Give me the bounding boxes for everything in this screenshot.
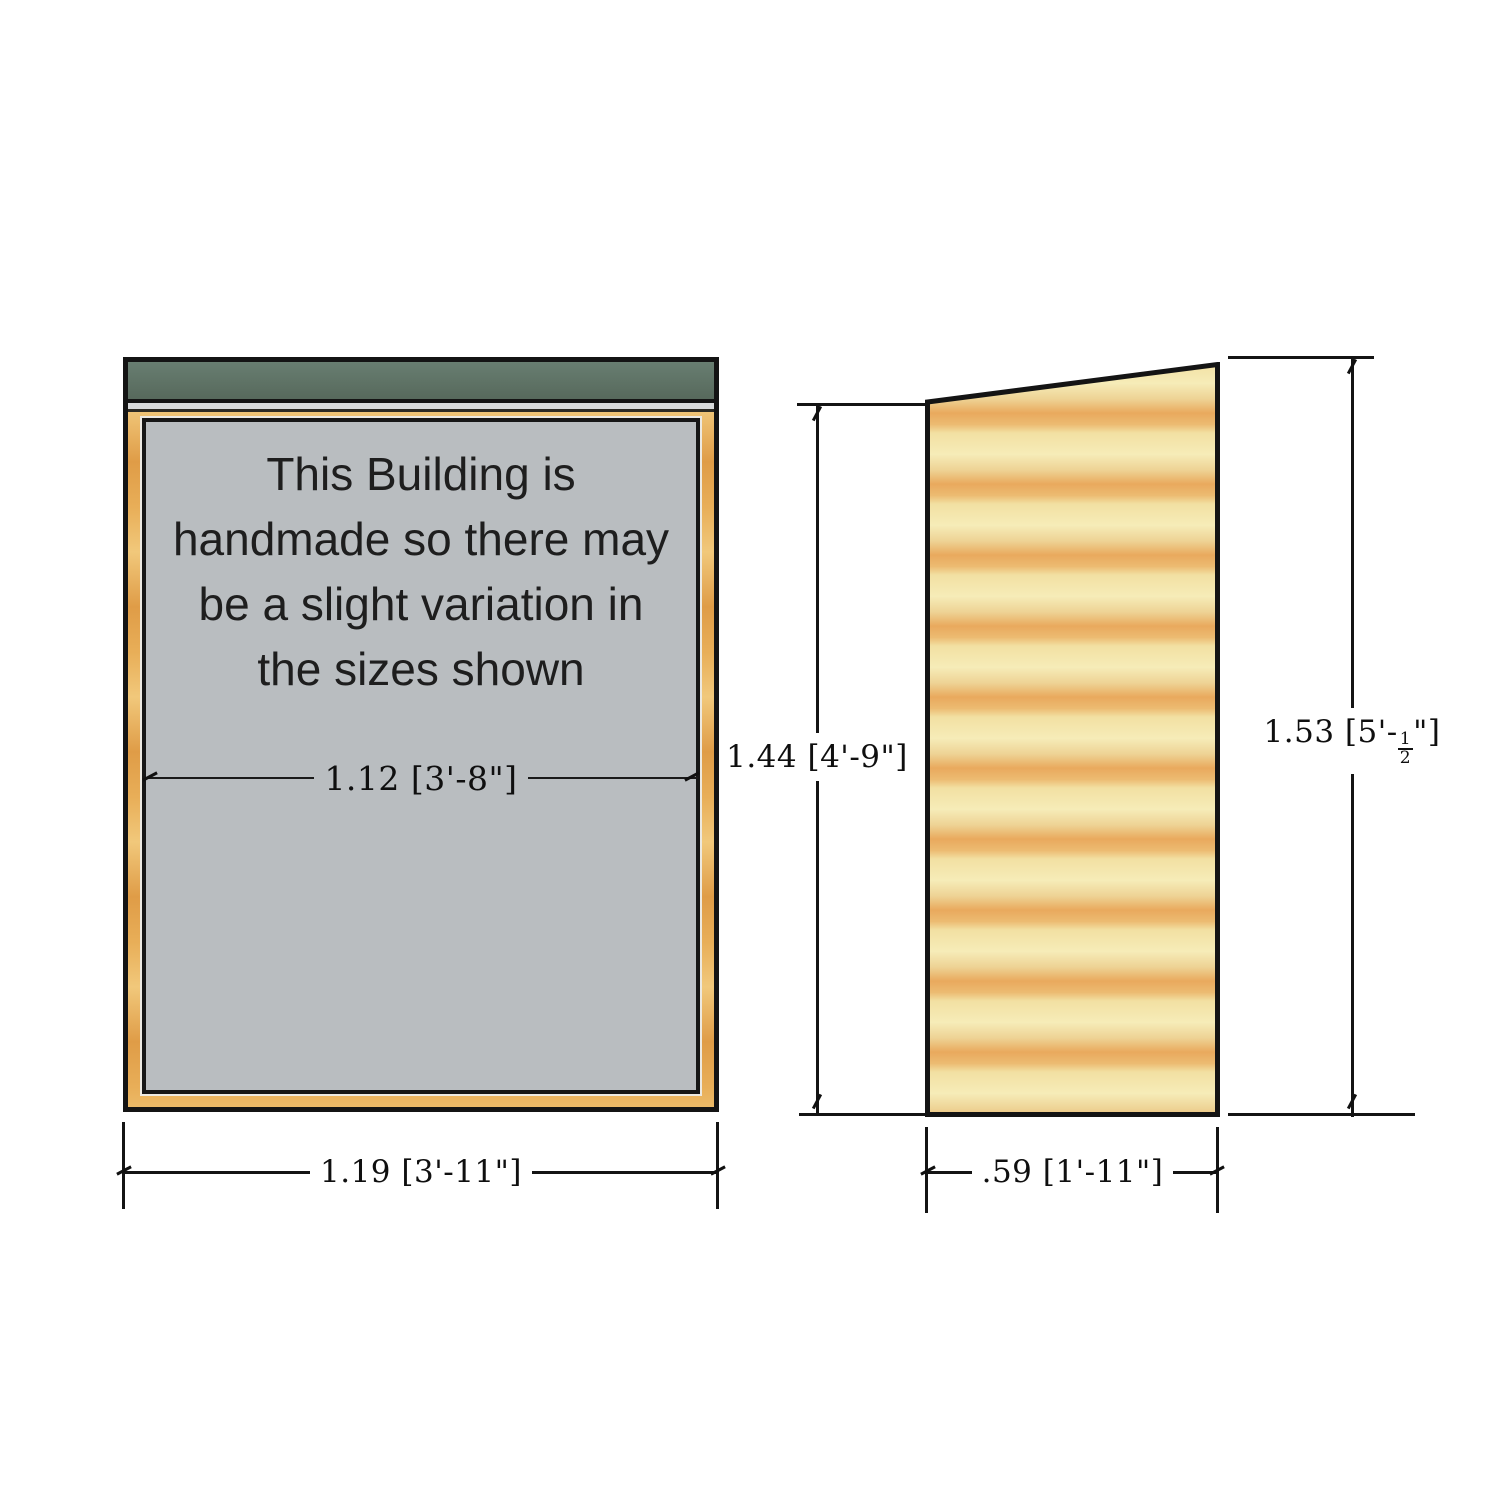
side-elevation-drawing [925,362,1220,1117]
front-elevation-drawing: This Building is handmade so there may b… [123,357,719,1112]
half-inch-fraction: 12 [1398,731,1413,768]
inner-width-dimension: 1.12 [3'-8"] [146,760,696,796]
notice-line-1: This Building is [146,442,696,507]
dimension-tick [1209,1165,1225,1175]
front-width-dimension: 1.19 [3'-11"] [123,1154,719,1190]
front-panel: This Building is handmade so there may b… [142,418,700,1094]
label-prefix: 1.53 [5'- [1264,714,1398,750]
handmade-notice: This Building is handmade so there may b… [146,422,696,702]
extension-line [1228,1113,1415,1116]
notice-line-3: be a slight variation in [146,572,696,637]
side-depth-label: .59 [1'-11"] [972,1154,1174,1190]
notice-line-2: handmade so there may [146,507,696,572]
dimension-tick [710,1165,726,1175]
side-panel [928,365,1218,1115]
side-depth-dimension: .59 [1'-11"] [927,1154,1218,1190]
notice-line-4: the sizes shown [146,637,696,702]
fraction-denominator: 2 [1398,750,1413,767]
label-suffix: "] [1413,714,1440,750]
inner-width-label: 1.12 [3'-8"] [314,759,527,798]
roof-fascia [128,362,714,399]
front-wood-frame: This Building is handmade so there may b… [128,412,714,1107]
dimension-diagram: This Building is handmade so there may b… [0,0,1500,1500]
front-width-label: 1.19 [3'-11"] [310,1154,532,1190]
side-rear-height-dimension: 1.44 [4'-9"] [711,733,923,781]
side-front-height-dimension: 1.53 [5'-12"] [1235,708,1469,774]
side-rear-height-label: 1.44 [4'-9"] [720,733,914,781]
side-front-height-label: 1.53 [5'-12"] [1258,708,1447,774]
